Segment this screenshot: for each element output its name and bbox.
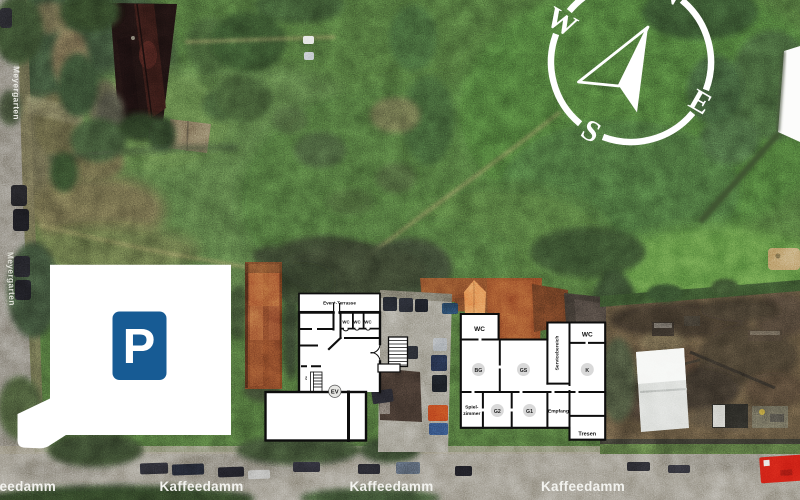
svg-text:Spiel-: Spiel- — [465, 405, 479, 411]
svg-text:G2: G2 — [494, 409, 501, 415]
svg-text:Servicebereich: Servicebereich — [555, 336, 561, 371]
svg-text:Kaffeedamm: Kaffeedamm — [0, 479, 56, 494]
svg-text:Zu: Zu — [304, 376, 308, 380]
svg-text:Meyergarten: Meyergarten — [12, 66, 22, 120]
svg-text:Kaffeedamm: Kaffeedamm — [541, 479, 625, 494]
svg-text:zimmer: zimmer — [463, 411, 480, 417]
svg-text:WC: WC — [353, 319, 360, 324]
svg-text:WC: WC — [474, 326, 485, 333]
svg-text:K: K — [585, 368, 589, 374]
svg-text:WC: WC — [342, 319, 349, 324]
svg-text:EV: EV — [331, 390, 339, 396]
svg-text:BG: BG — [475, 368, 483, 374]
svg-text:WC: WC — [364, 319, 371, 324]
svg-text:GS: GS — [520, 368, 528, 374]
svg-text:Kaffeedamm: Kaffeedamm — [350, 479, 434, 494]
svg-text:Kaffeedamm: Kaffeedamm — [160, 479, 244, 494]
svg-text:P: P — [123, 320, 156, 374]
svg-text:Meyergarten: Meyergarten — [6, 252, 18, 306]
svg-text:G1: G1 — [526, 409, 533, 415]
svg-text:WC: WC — [582, 332, 593, 339]
svg-text:Tresen: Tresen — [578, 432, 596, 438]
svg-text:Empfang: Empfang — [548, 409, 569, 415]
